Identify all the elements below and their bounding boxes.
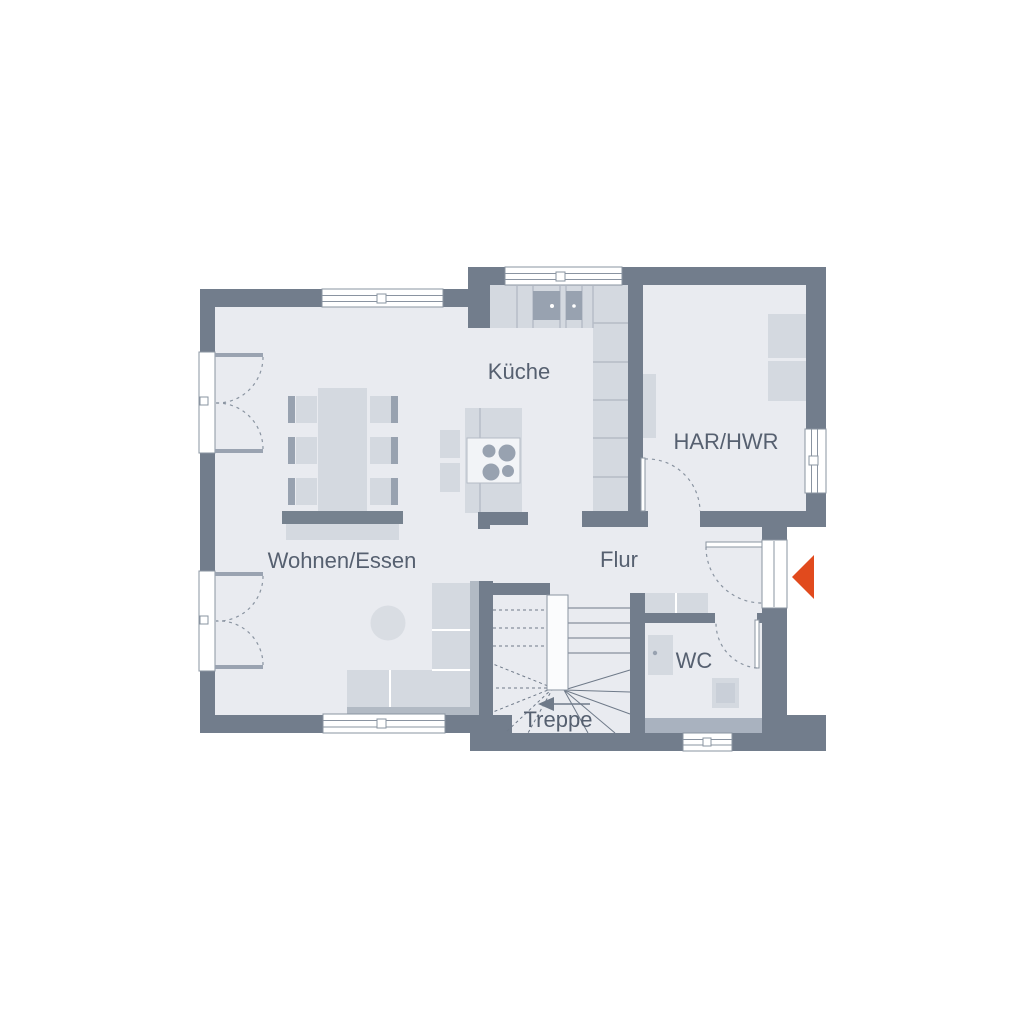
- window-living-bottom: [323, 714, 445, 733]
- wc-sink: [648, 635, 673, 675]
- room-label-har-hwr: HAR/HWR: [673, 429, 778, 454]
- dining-table-set: [282, 388, 403, 540]
- flur-bench: [645, 593, 708, 613]
- kitchen-appliance: [566, 291, 582, 320]
- dining-chairs-right: [370, 396, 398, 505]
- room-label-kueche: Küche: [488, 359, 550, 384]
- wc-door-opening: [715, 612, 757, 624]
- floor-plan-page: Küche HAR/HWR Wohnen/Essen Flur WC Trepp…: [0, 0, 1024, 1024]
- window-handle-icon: [377, 719, 386, 728]
- door-handle-icon: [200, 616, 208, 624]
- window-handle-icon: [703, 738, 711, 746]
- kitchen-sink: [533, 291, 560, 320]
- window-handle-icon: [809, 456, 818, 465]
- door-handle-icon: [200, 397, 208, 405]
- window-har-right: [805, 429, 826, 493]
- sideboard: [282, 511, 403, 540]
- dining-table: [318, 388, 367, 512]
- dining-chairs-left: [288, 396, 317, 505]
- rug: [371, 606, 406, 641]
- entrance-arrow-icon: [792, 555, 814, 599]
- room-label-wohnen-essen: Wohnen/Essen: [268, 548, 417, 573]
- window-kitchen-top: [505, 267, 622, 285]
- window-handle-icon: [377, 294, 386, 303]
- wc-toilet: [712, 678, 739, 708]
- har-door-opening: [648, 510, 700, 528]
- room-label-treppe: Treppe: [524, 707, 593, 732]
- window-living-top: [322, 289, 443, 307]
- floor-plan: Küche HAR/HWR Wohnen/Essen Flur WC Trepp…: [0, 0, 1024, 1024]
- stair-spine: [547, 595, 568, 690]
- wc-knee-wall: [645, 718, 770, 733]
- window-wc-bottom: [683, 733, 732, 751]
- kitchen-island: [465, 408, 522, 513]
- room-label-flur: Flur: [600, 547, 638, 572]
- room-label-wc: WC: [676, 648, 713, 673]
- window-handle-icon: [556, 272, 565, 281]
